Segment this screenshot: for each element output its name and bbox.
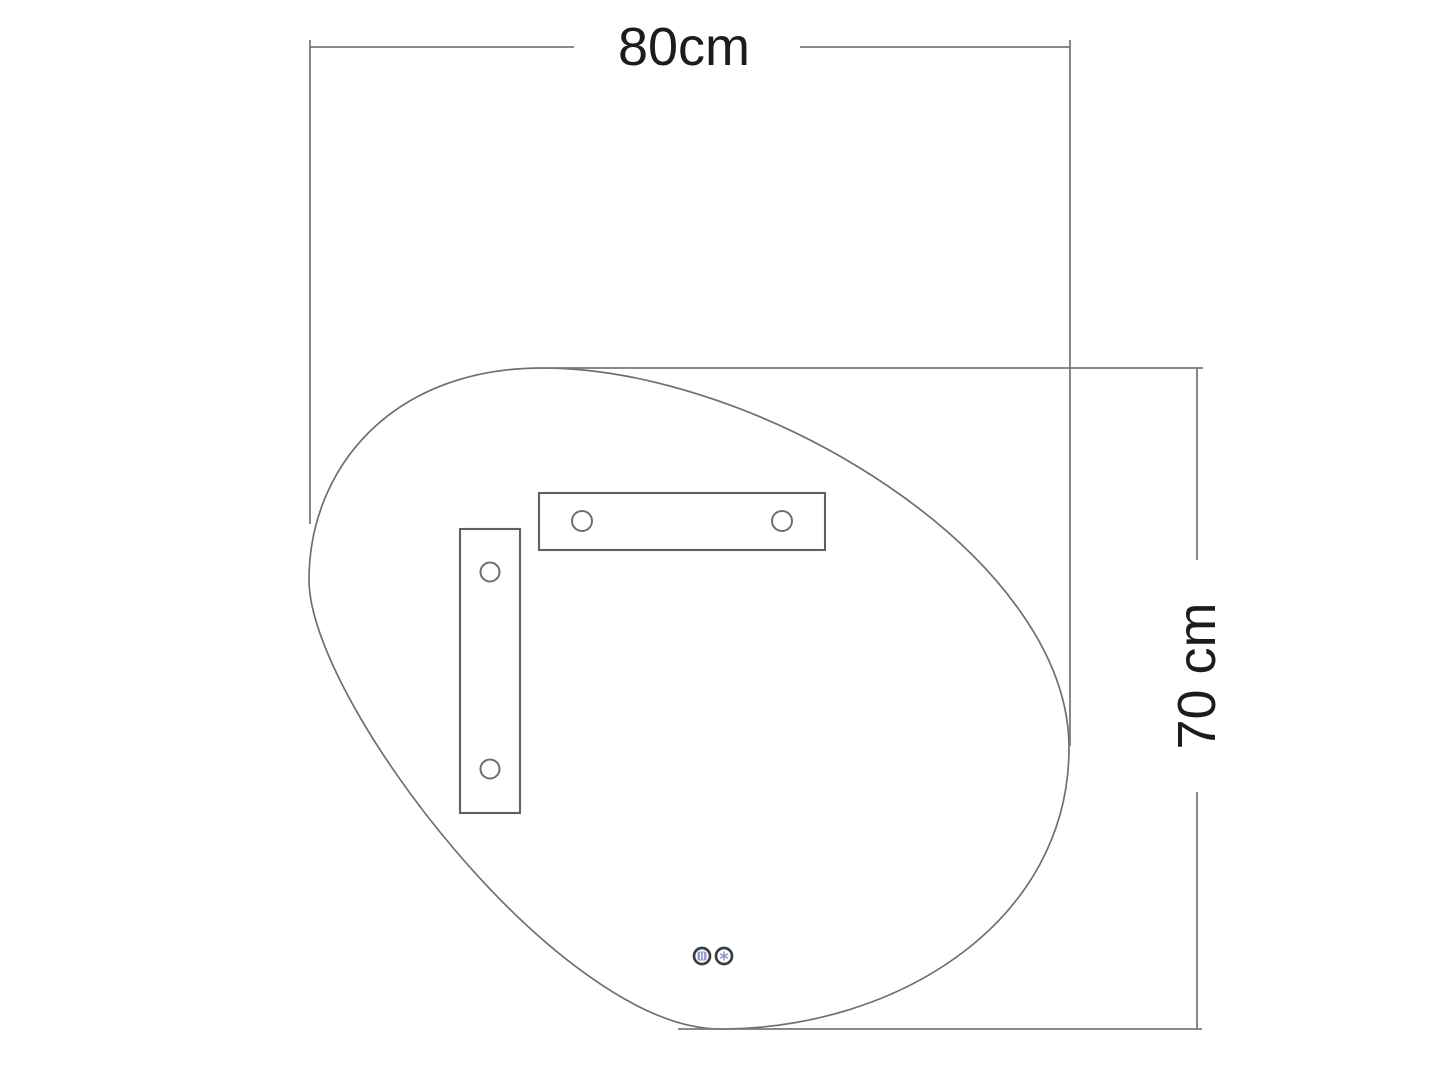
screw-hole bbox=[772, 511, 792, 531]
screw-hole bbox=[572, 511, 592, 531]
screw-hole bbox=[481, 760, 500, 779]
light-glyph bbox=[698, 952, 707, 961]
mirror-outline bbox=[309, 368, 1069, 1029]
width-dimension-label: 80cm bbox=[618, 17, 750, 77]
defog-sensor-icon bbox=[716, 948, 732, 964]
vertical-mounting-bracket bbox=[460, 529, 520, 813]
light-sensor-icon bbox=[694, 948, 710, 964]
screw-hole bbox=[481, 563, 500, 582]
horizontal-mounting-bracket bbox=[539, 493, 825, 550]
height-dimension-label: 70 cm bbox=[1167, 602, 1227, 749]
mirror-dimension-diagram: 80cm 70 cm bbox=[0, 0, 1440, 1080]
